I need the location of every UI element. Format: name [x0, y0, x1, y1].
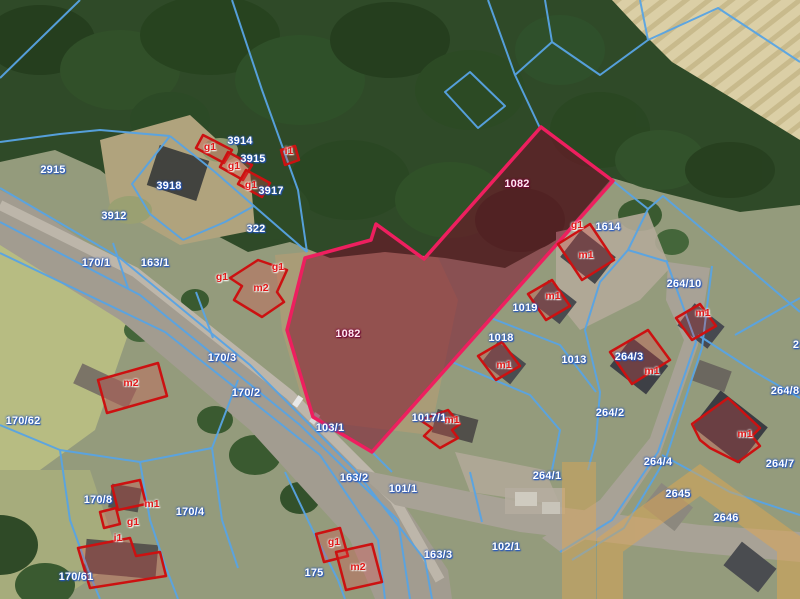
map-canvas [0, 0, 800, 599]
map-viewport[interactable]: 291539143915391739183912322170/1163/1108… [0, 0, 800, 599]
